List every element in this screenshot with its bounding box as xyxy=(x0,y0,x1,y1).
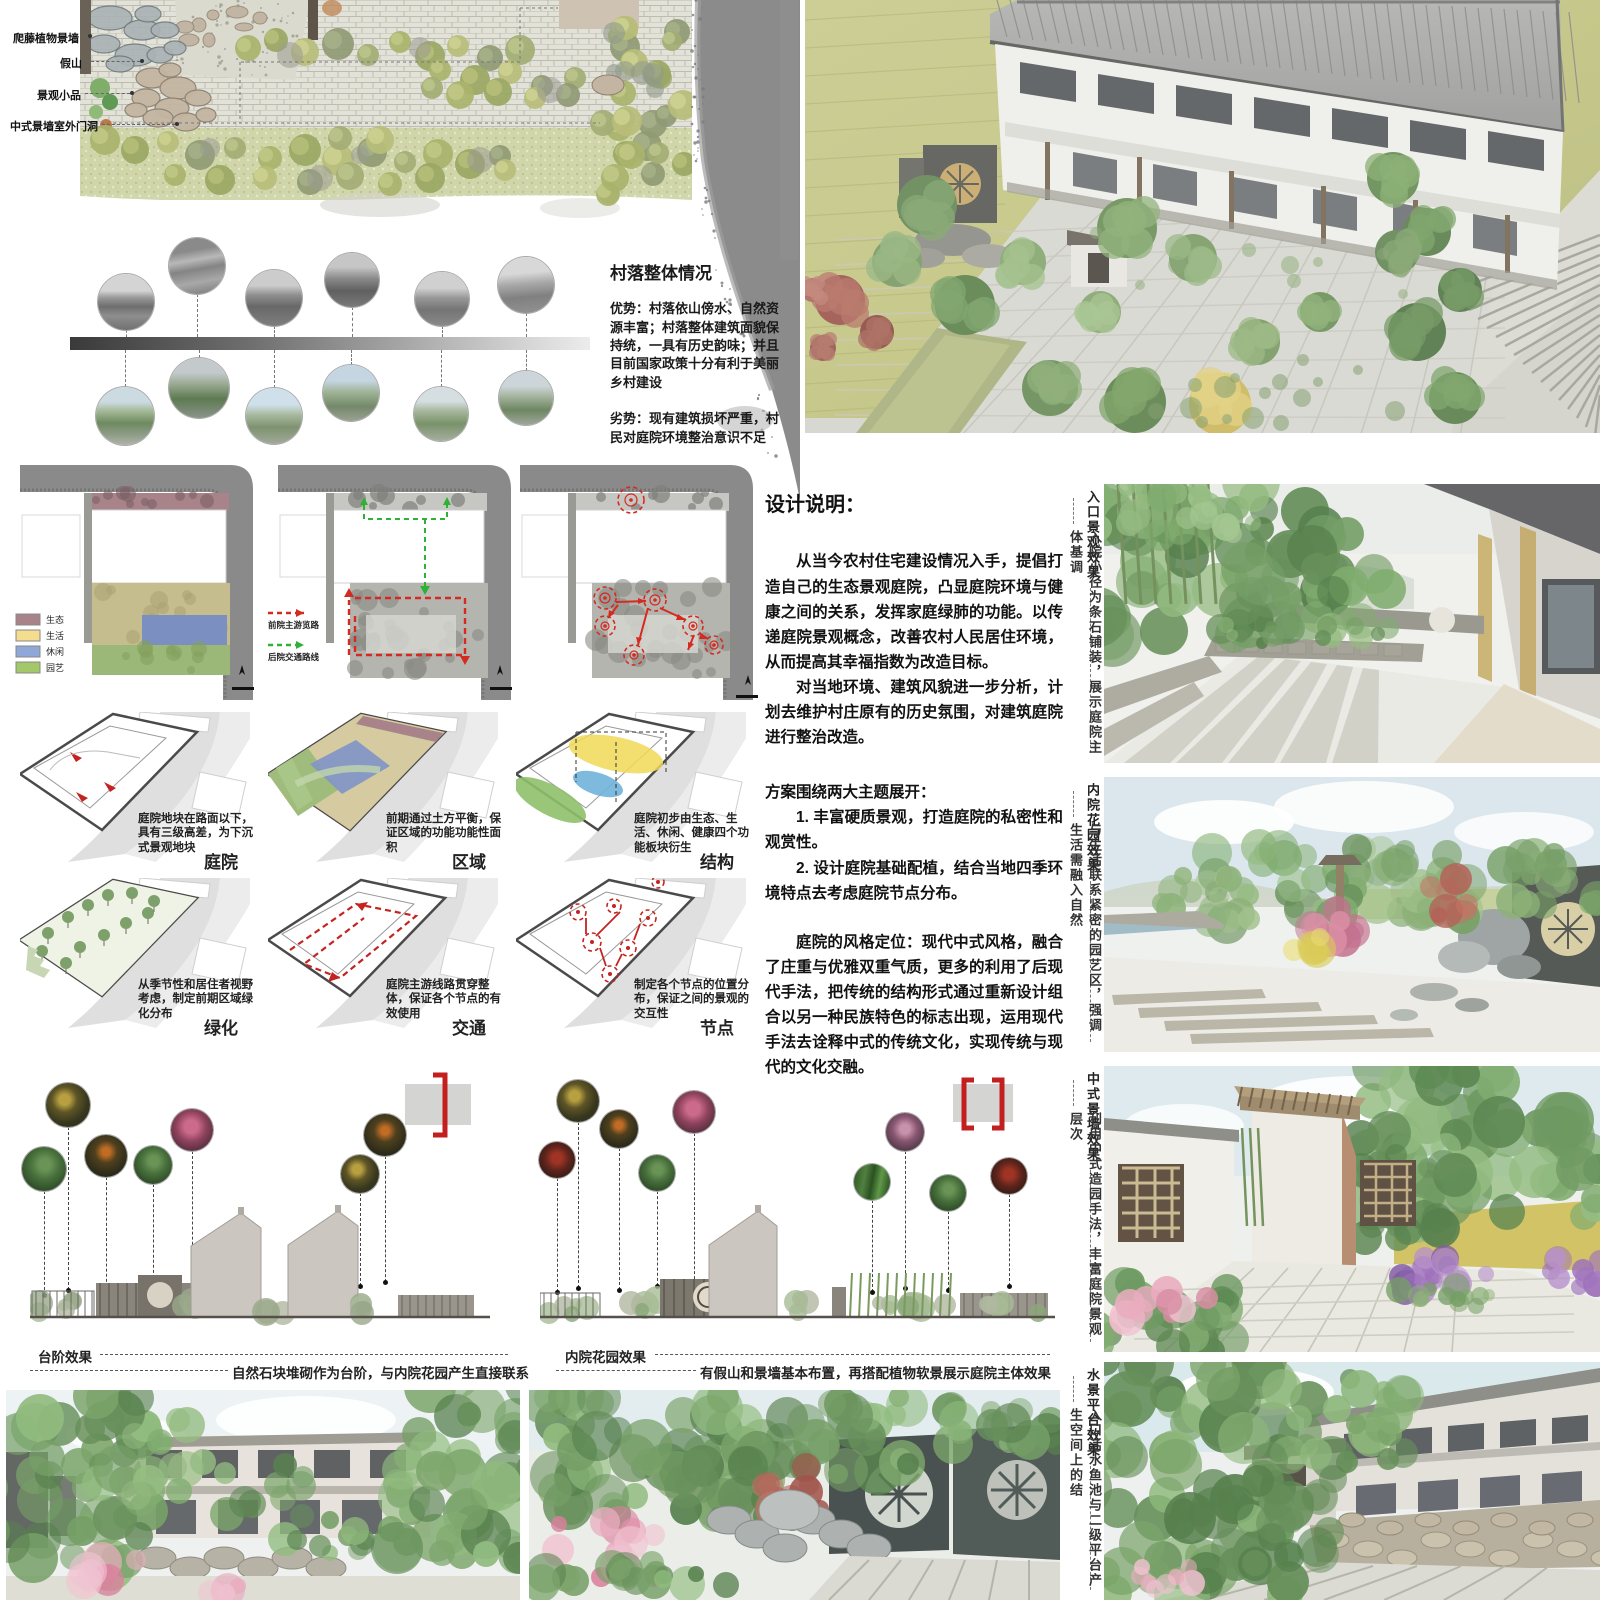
svg-text:生活: 生活 xyxy=(46,630,64,641)
svg-text:园艺: 园艺 xyxy=(46,663,64,673)
svg-text:后院交通路线: 后院交通路线 xyxy=(268,652,320,662)
svg-text:生态: 生态 xyxy=(46,614,64,625)
svg-text:休闲: 休闲 xyxy=(46,646,64,657)
svg-text:前院主游览路: 前院主游览路 xyxy=(268,620,320,630)
